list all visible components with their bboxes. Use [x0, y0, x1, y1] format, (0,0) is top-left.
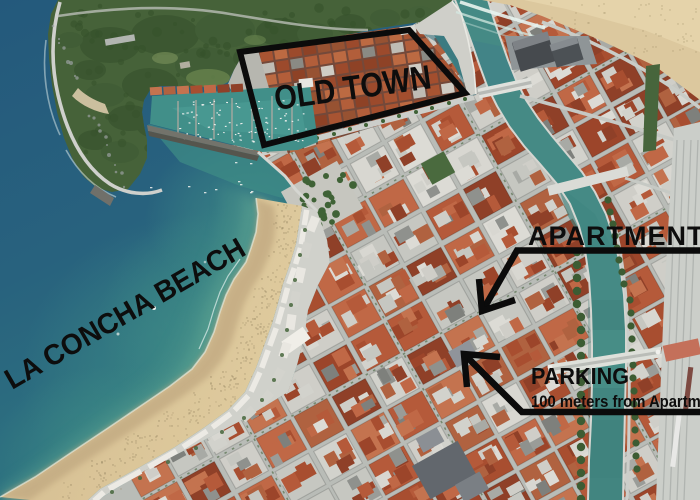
svg-text:PARKING: PARKING [531, 363, 629, 389]
svg-text:APARTMENT: APARTMENT [528, 221, 700, 251]
svg-text:100 meters from Apartment: 100 meters from Apartment [531, 392, 700, 411]
